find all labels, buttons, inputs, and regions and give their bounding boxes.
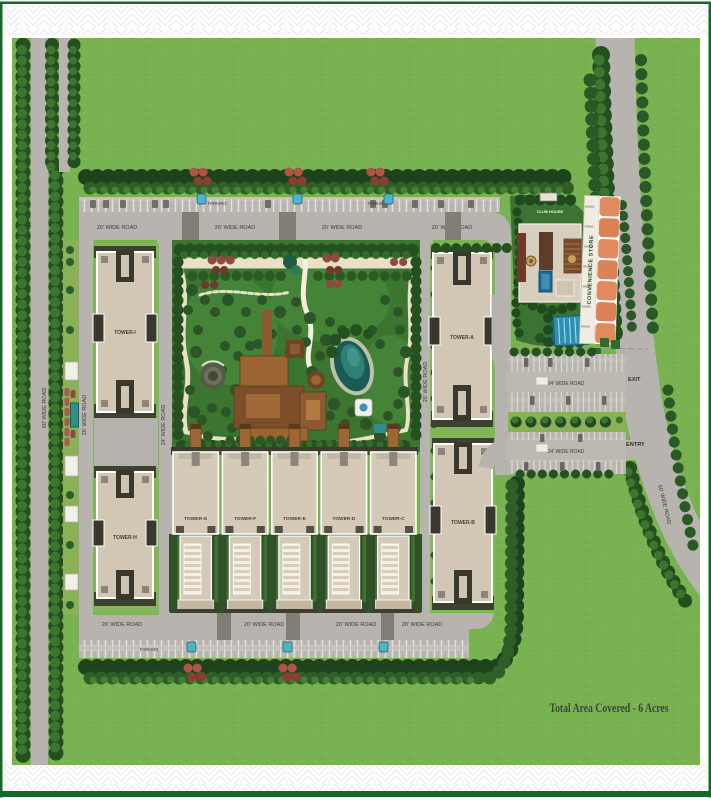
svg-text:20' WIDE ROAD: 20' WIDE ROAD bbox=[215, 225, 256, 231]
svg-text:26' WIDE ROAD: 26' WIDE ROAD bbox=[102, 622, 143, 628]
svg-text:60' WIDE ROAD: 60' WIDE ROAD bbox=[42, 388, 48, 429]
svg-text:PARKING: PARKING bbox=[208, 201, 227, 206]
svg-text:EXIT: EXIT bbox=[628, 377, 641, 383]
svg-text:TOWER-D: TOWER-D bbox=[332, 516, 355, 522]
svg-text:TOWER-E: TOWER-E bbox=[283, 516, 306, 522]
svg-text:28' WIDE ROAD: 28' WIDE ROAD bbox=[402, 622, 443, 628]
svg-text:PARKING: PARKING bbox=[140, 647, 159, 652]
svg-text:20' WIDE ROAD: 20' WIDE ROAD bbox=[322, 225, 363, 231]
svg-text:TOWER-A: TOWER-A bbox=[450, 335, 474, 341]
svg-text:24' WIDE ROAD: 24' WIDE ROAD bbox=[161, 405, 167, 446]
svg-text:TOWER-H: TOWER-H bbox=[113, 535, 137, 541]
svg-text:CLUB HOUSE: CLUB HOUSE bbox=[537, 209, 564, 214]
svg-text:TOWER-B: TOWER-B bbox=[451, 520, 475, 526]
svg-text:24' WIDE ROAD: 24' WIDE ROAD bbox=[548, 449, 585, 455]
svg-text:Total Area Covered - 6 Acres: Total Area Covered - 6 Acres bbox=[550, 701, 669, 715]
svg-text:25' WIDE ROAD: 25' WIDE ROAD bbox=[423, 362, 429, 403]
svg-text:20' WIDE ROAD: 20' WIDE ROAD bbox=[244, 622, 285, 628]
svg-text:24' WIDE ROAD: 24' WIDE ROAD bbox=[548, 381, 585, 387]
svg-text:TOWER-C: TOWER-C bbox=[382, 516, 405, 522]
svg-text:TOWER-G: TOWER-G bbox=[184, 516, 207, 522]
svg-text:20' WIDE ROAD: 20' WIDE ROAD bbox=[97, 225, 138, 231]
svg-text:26' WIDE ROAD: 26' WIDE ROAD bbox=[82, 395, 88, 436]
svg-text:20' WIDE ROAD: 20' WIDE ROAD bbox=[336, 622, 377, 628]
svg-text:ENTRY: ENTRY bbox=[626, 442, 645, 448]
svg-text:TOWER-F: TOWER-F bbox=[234, 516, 256, 522]
svg-text:TOWER-I: TOWER-I bbox=[114, 330, 136, 336]
